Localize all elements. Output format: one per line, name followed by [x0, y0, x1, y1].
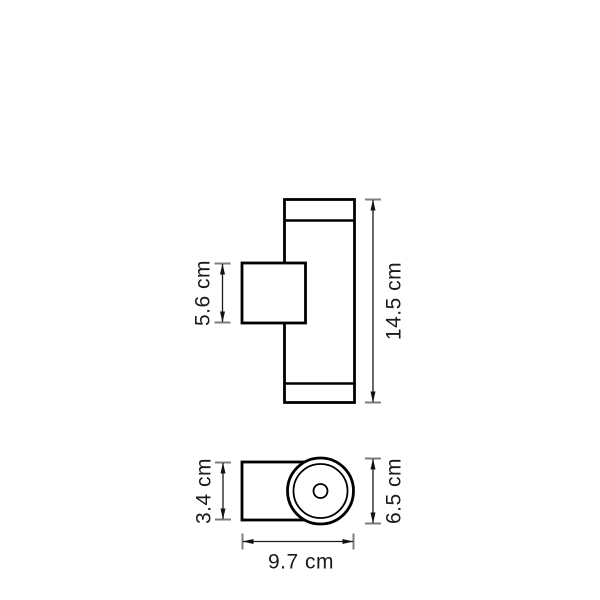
front-view: [242, 200, 355, 403]
dim-label-bracket-height: 5.6 cm: [191, 260, 214, 326]
dim-label-overall-height: 14.5 cm: [382, 262, 405, 340]
dim-arrow-left-icon: [243, 539, 254, 544]
dimension-drawing: 5.6 cm 14.5 cm: [0, 0, 600, 600]
dim-arrow-up-icon: [371, 200, 376, 211]
dim-arrow-down-icon: [371, 392, 376, 403]
dimension-bracket-depth: 3.4 cm: [192, 458, 231, 524]
dim-arrow-up-icon: [221, 463, 226, 474]
drawing-canvas: 5.6 cm 14.5 cm: [0, 0, 600, 600]
dimension-overall-height: 14.5 cm: [365, 200, 405, 403]
dim-label-bracket-depth: 3.4 cm: [192, 458, 215, 524]
dim-arrow-down-icon: [371, 513, 376, 524]
dimension-overall-depth: 9.7 cm: [243, 534, 354, 574]
dim-arrow-right-icon: [343, 539, 354, 544]
dim-label-body-diameter: 6.5 cm: [382, 458, 405, 524]
body-outer-circle: [288, 458, 354, 524]
top-view: [242, 458, 354, 524]
dim-arrow-down-icon: [221, 509, 226, 520]
dim-label-overall-depth: 9.7 cm: [268, 550, 334, 573]
dim-arrow-down-icon: [220, 312, 225, 323]
dim-arrow-up-icon: [371, 459, 376, 470]
dimension-body-diameter: 6.5 cm: [365, 458, 405, 524]
dimension-bracket-height: 5.6 cm: [191, 260, 230, 326]
mount-bracket-outline: [242, 263, 306, 323]
dim-arrow-up-icon: [220, 264, 225, 275]
